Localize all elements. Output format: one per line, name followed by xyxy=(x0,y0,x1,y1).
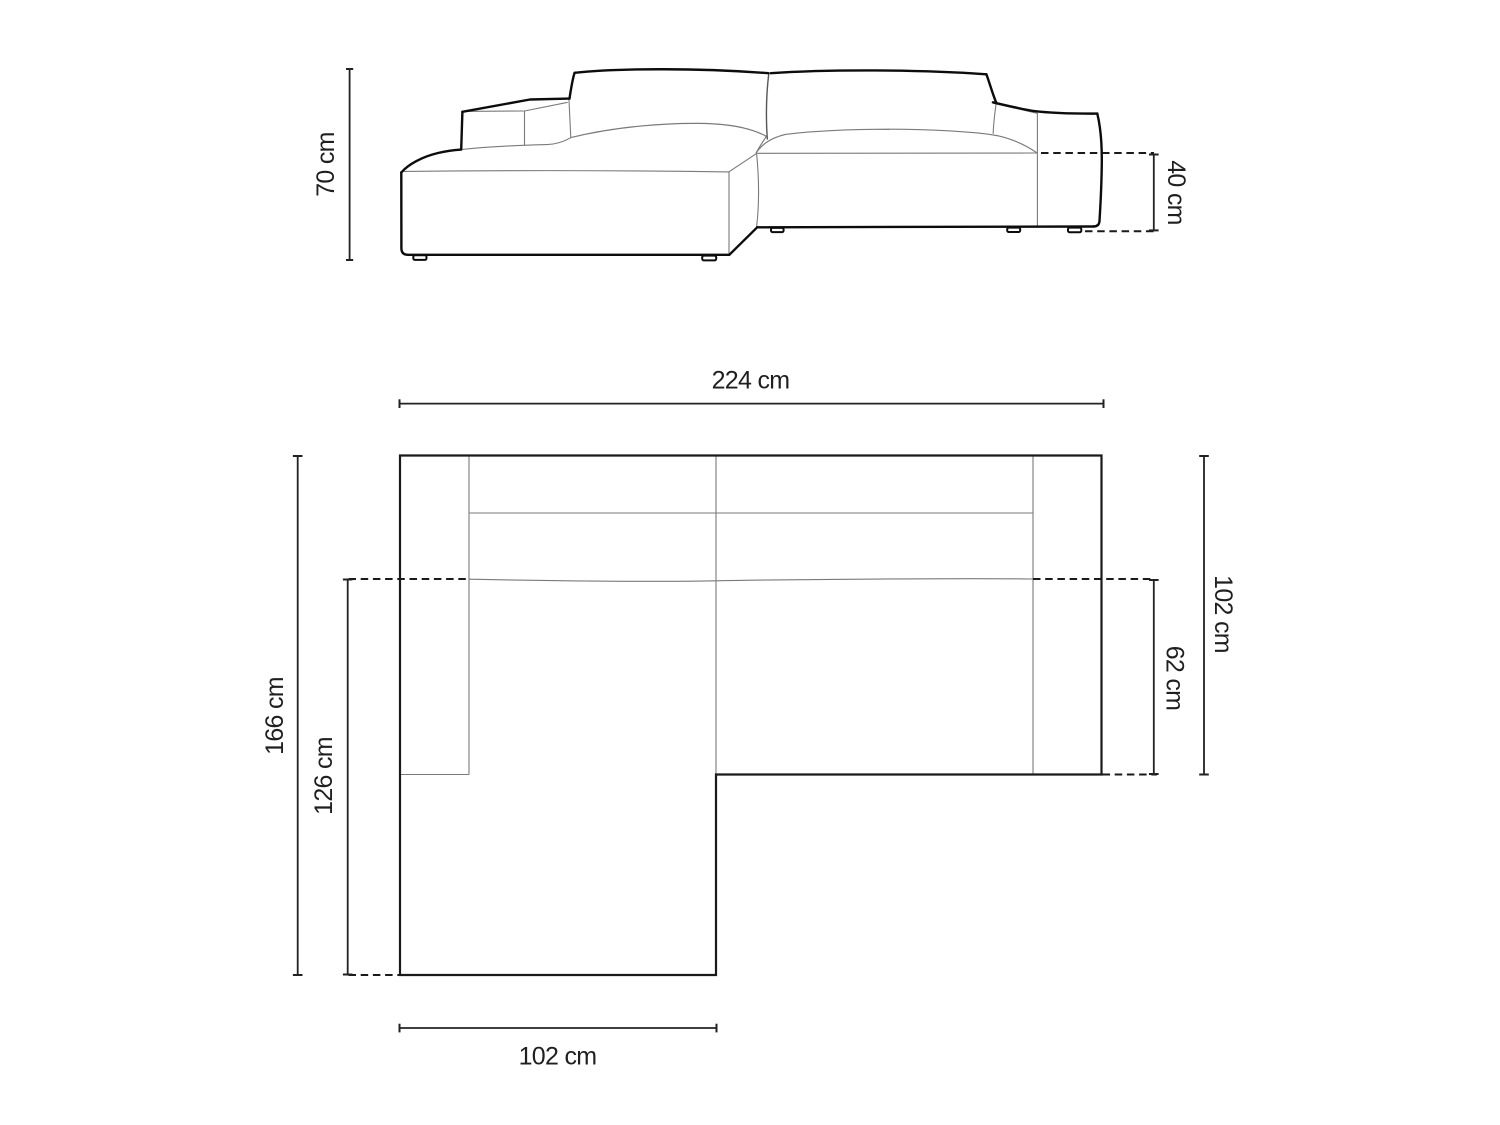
svg-text:102 cm: 102 cm xyxy=(1209,575,1237,653)
svg-text:70 cm: 70 cm xyxy=(312,132,340,197)
svg-text:126 cm: 126 cm xyxy=(310,737,338,815)
svg-text:224 cm: 224 cm xyxy=(712,367,790,395)
svg-text:40 cm: 40 cm xyxy=(1162,160,1190,225)
svg-text:102 cm: 102 cm xyxy=(519,1043,597,1071)
svg-text:166 cm: 166 cm xyxy=(261,677,289,755)
svg-text:62 cm: 62 cm xyxy=(1161,646,1189,711)
